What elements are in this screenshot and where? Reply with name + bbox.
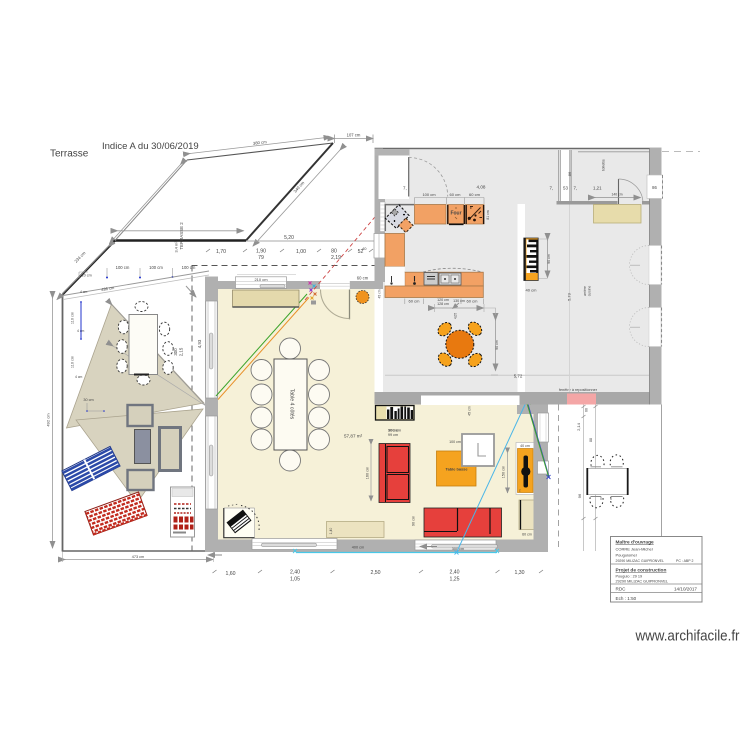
- svg-text:Maître d'ouvrage: Maître d'ouvrage: [616, 540, 655, 546]
- svg-text:Four: Four: [450, 211, 461, 217]
- svg-text:60 cm: 60 cm: [357, 276, 369, 281]
- svg-text:cuisine: cuisine: [588, 286, 592, 297]
- svg-text:45 cm: 45 cm: [378, 289, 382, 298]
- svg-text:100 cm: 100 cm: [182, 265, 196, 270]
- svg-text:toilette: toilette: [601, 158, 606, 171]
- svg-text:110 cm: 110 cm: [71, 356, 75, 368]
- svg-text:100 cm: 100 cm: [449, 440, 461, 444]
- svg-text:210 cm: 210 cm: [254, 277, 268, 282]
- svg-text:107 cm: 107 cm: [347, 133, 361, 138]
- svg-text:14/10/2017: 14/10/2017: [674, 587, 697, 592]
- svg-text:160 cm: 160 cm: [366, 467, 370, 479]
- svg-text:88: 88: [589, 438, 593, 442]
- svg-text:1,25: 1,25: [449, 577, 459, 583]
- svg-text:45 cm: 45 cm: [468, 406, 472, 416]
- svg-text:5,72: 5,72: [514, 374, 523, 379]
- svg-text:60 cm: 60 cm: [522, 533, 532, 537]
- svg-text:100 cm: 100 cm: [149, 265, 163, 270]
- svg-text:4 cm: 4 cm: [80, 290, 88, 294]
- svg-text:100 cm: 100 cm: [422, 192, 436, 197]
- svg-text:80: 80: [331, 249, 337, 255]
- svg-text:www.archifacile.fr: www.archifacile.fr: [635, 628, 740, 645]
- svg-text:PC : ABP 2: PC : ABP 2: [676, 559, 693, 563]
- svg-text:81 cm: 81 cm: [486, 210, 490, 219]
- svg-text:90 cm: 90 cm: [547, 254, 551, 264]
- svg-text:128 cm: 128 cm: [437, 302, 449, 306]
- svg-text:1,70: 1,70: [216, 249, 226, 255]
- svg-text:60 cm: 60 cm: [409, 299, 421, 304]
- svg-text:79: 79: [258, 255, 264, 261]
- svg-text:66: 66: [585, 408, 589, 412]
- svg-text:40 cm: 40 cm: [526, 288, 538, 293]
- svg-text:fenêtre à repositionner: fenêtre à repositionner: [559, 388, 598, 392]
- svg-text:473 cm: 473 cm: [132, 555, 144, 559]
- svg-text:86: 86: [652, 185, 657, 190]
- svg-text:29290 MILIZAC GUIPRONVEL: 29290 MILIZAC GUIPRONVEL: [616, 559, 664, 563]
- svg-text:7,: 7,: [550, 186, 554, 191]
- svg-text:29290 MILIZAC GUIPRONVEL: 29290 MILIZAC GUIPRONVEL: [616, 580, 669, 584]
- svg-text:300: 300: [173, 348, 178, 356]
- svg-text:4,93: 4,93: [197, 339, 202, 348]
- svg-text:Ech : 1:50: Ech : 1:50: [616, 596, 637, 601]
- svg-text:7,: 7,: [574, 186, 578, 191]
- svg-text:Pouguiomel: Pouguiomel: [616, 553, 637, 558]
- svg-text:110 cm: 110 cm: [71, 312, 75, 324]
- svg-text:1,30: 1,30: [514, 570, 524, 576]
- svg-text:arrière: arrière: [583, 286, 587, 296]
- svg-text:90 cm: 90 cm: [388, 429, 398, 433]
- svg-text:RDC: RDC: [616, 587, 627, 592]
- svg-text:2,50: 2,50: [370, 570, 380, 576]
- svg-text:5,20: 5,20: [284, 235, 294, 241]
- svg-text:99 cm: 99 cm: [388, 433, 398, 437]
- svg-text:CORRE Jean-Michel: CORRE Jean-Michel: [616, 547, 653, 552]
- svg-text:Table 4 côtés: Table 4 côtés: [289, 389, 295, 420]
- svg-text:7,: 7,: [403, 186, 407, 191]
- svg-text:1,40: 1,40: [329, 528, 333, 535]
- svg-text:Indice A du 30/06/2019: Indice A du 30/06/2019: [102, 141, 199, 152]
- svg-text:1,00: 1,00: [296, 249, 306, 255]
- svg-text:Terrasse: Terrasse: [50, 149, 89, 160]
- svg-text:40 cm: 40 cm: [520, 444, 530, 448]
- svg-text:2,40: 2,40: [290, 570, 300, 576]
- svg-text:TERRASSE 2: TERRASSE 2: [179, 222, 184, 250]
- svg-text:86: 86: [567, 171, 572, 176]
- svg-text:57,87 m²: 57,87 m²: [344, 434, 363, 439]
- svg-text:96: 96: [577, 493, 582, 498]
- svg-text:Table basse: Table basse: [446, 467, 469, 472]
- svg-text:1,90: 1,90: [256, 249, 266, 255]
- svg-text:2,40: 2,40: [449, 570, 459, 576]
- svg-text:4 cm: 4 cm: [75, 375, 83, 379]
- svg-text:130 cm: 130 cm: [453, 299, 465, 303]
- svg-text:1,60: 1,60: [225, 571, 235, 577]
- svg-text:2,14: 2,14: [576, 422, 581, 431]
- svg-text:Projet de construction: Projet de construction: [616, 568, 667, 574]
- svg-text:z: z: [519, 489, 521, 493]
- svg-text:400 cm: 400 cm: [352, 546, 364, 550]
- svg-text:150 cm: 150 cm: [502, 466, 506, 478]
- svg-text:3,4 m²: 3,4 m²: [174, 241, 179, 253]
- svg-text:60 cm: 60 cm: [467, 299, 479, 304]
- svg-text:4,08: 4,08: [477, 185, 486, 190]
- svg-text:60 cm: 60 cm: [469, 192, 481, 197]
- svg-text:5,73: 5,73: [567, 292, 572, 301]
- svg-text:1,05: 1,05: [290, 577, 300, 583]
- svg-text:2,15: 2,15: [179, 347, 184, 356]
- svg-text:4,05: 4,05: [454, 313, 458, 319]
- svg-text:492 cm: 492 cm: [46, 413, 51, 427]
- svg-text:140 cm: 140 cm: [611, 193, 622, 197]
- svg-text:90 cm: 90 cm: [495, 340, 499, 350]
- svg-text:1,21: 1,21: [593, 186, 602, 191]
- svg-text:100 cm: 100 cm: [116, 265, 130, 270]
- svg-text:2,19: 2,19: [331, 255, 341, 261]
- svg-text:90 cm: 90 cm: [412, 516, 416, 526]
- svg-text:53: 53: [563, 186, 568, 191]
- svg-text:40: 40: [362, 246, 367, 251]
- svg-text:10 cm: 10 cm: [82, 274, 92, 278]
- svg-text:60 cm: 60 cm: [450, 192, 462, 197]
- svg-text:30 cm: 30 cm: [83, 398, 93, 402]
- svg-text:Pouguio : 29 19: Pouguio : 29 19: [616, 575, 643, 579]
